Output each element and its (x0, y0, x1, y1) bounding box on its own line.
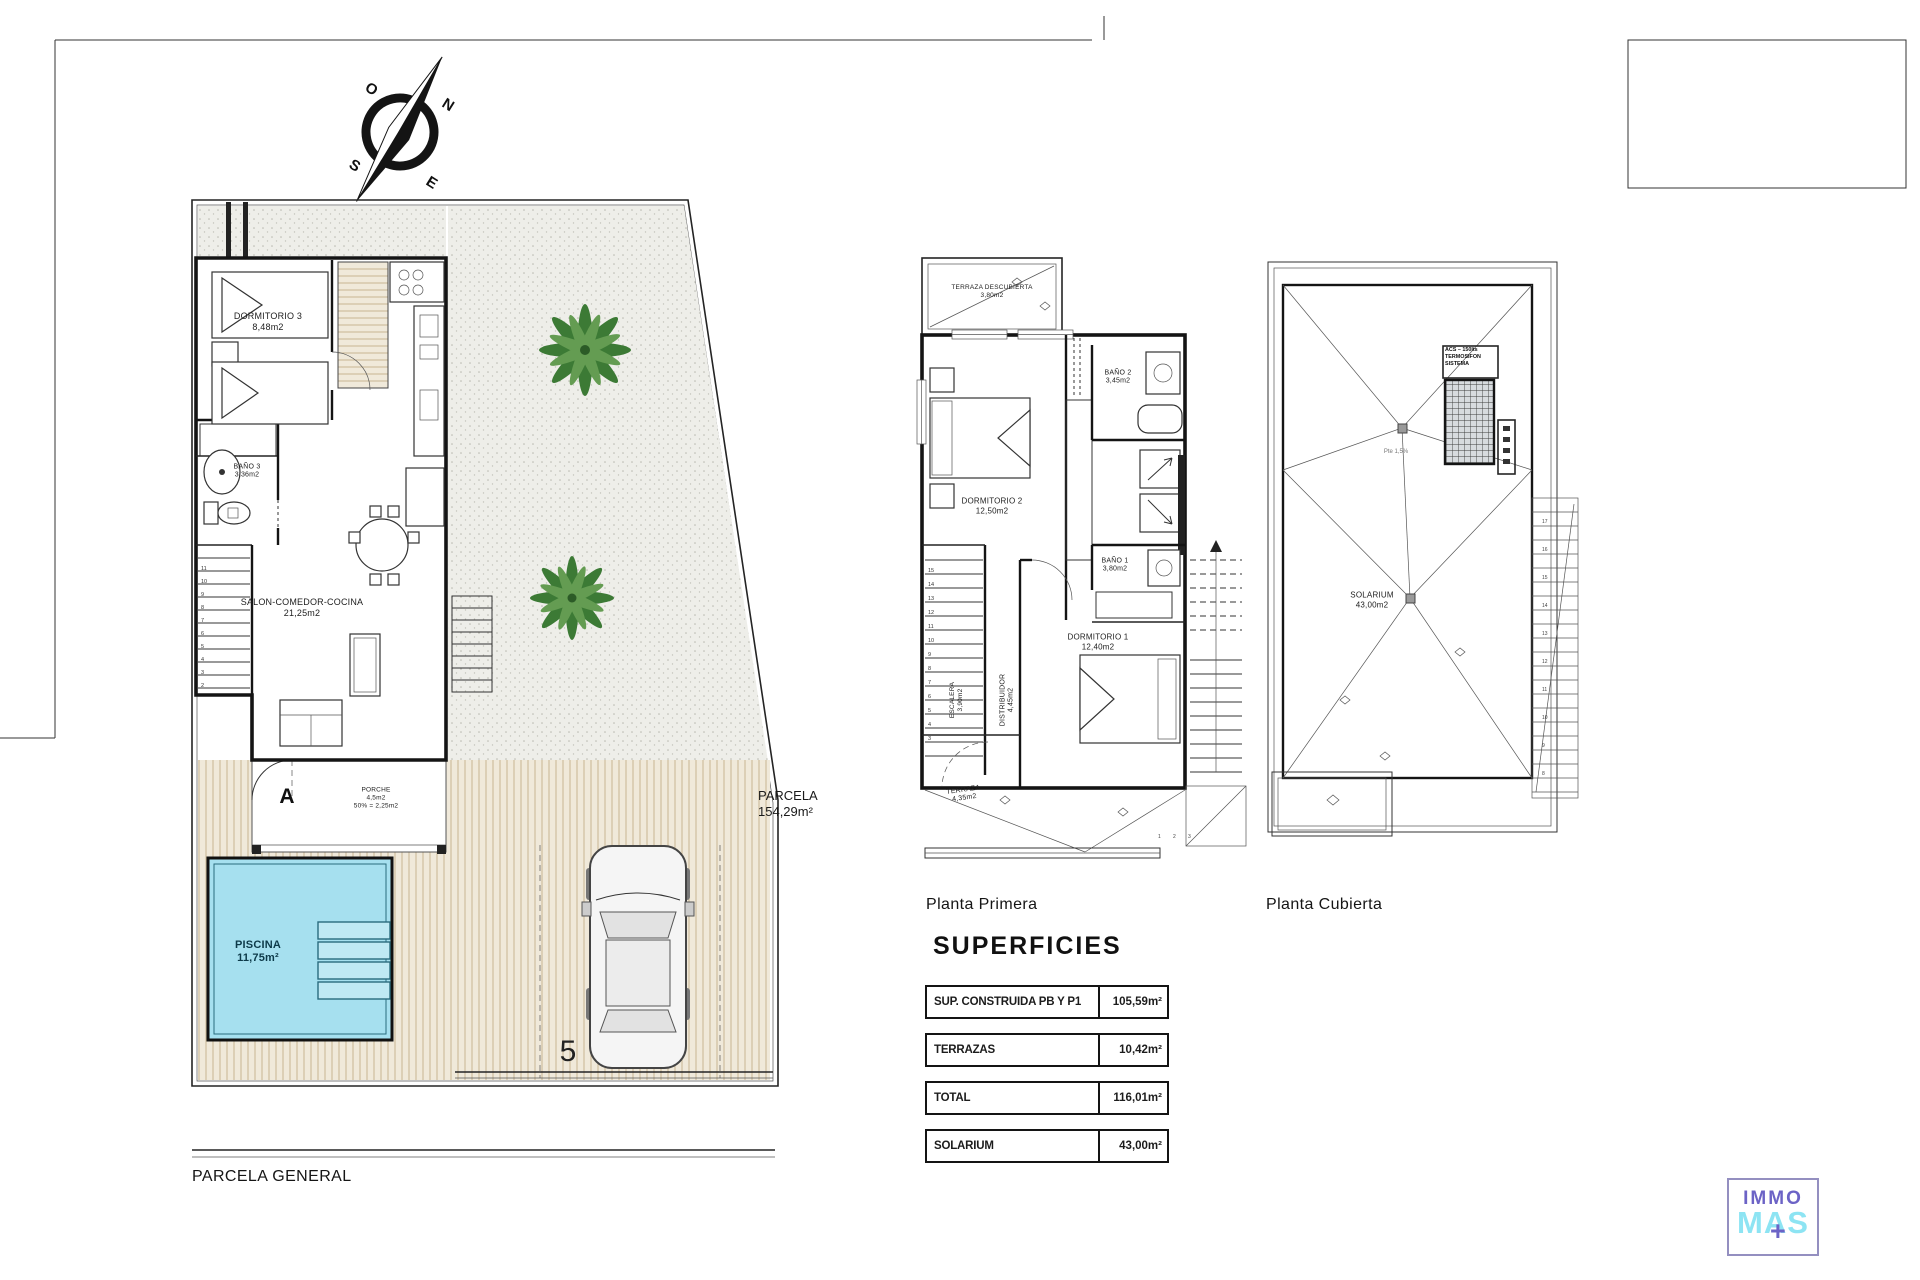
svg-text:8: 8 (1542, 771, 1545, 777)
label-parcela: PARCELA154,29m² (758, 788, 818, 821)
bathroom3-fixtures (204, 450, 250, 524)
svg-text:4: 4 (201, 657, 204, 663)
superficies-row-terrazas: TERRAZAS 10,42m² (925, 1033, 1169, 1067)
compass-e: E (423, 173, 441, 193)
palm-tree-1 (539, 304, 631, 396)
stairs-roof (1532, 498, 1578, 798)
wardrobe-first (1066, 400, 1092, 560)
stairs-first-right (1186, 540, 1246, 846)
garden-area (448, 206, 768, 762)
svg-text:9: 9 (201, 592, 204, 598)
svg-text:6: 6 (928, 694, 931, 700)
svg-text:11: 11 (928, 624, 934, 630)
svg-text:8: 8 (928, 666, 931, 672)
palm-tree-2 (530, 556, 614, 640)
svg-text:2: 2 (201, 683, 204, 689)
stairs-ground (198, 558, 250, 688)
svg-text:13: 13 (1542, 631, 1548, 637)
label-solarium: SOLARIUM43,00m2 (1350, 590, 1393, 609)
immomas-logo: IMMO MAS + (1727, 1178, 1819, 1256)
svg-text:16: 16 (1542, 547, 1548, 553)
label-dormitorio1: DORMITORIO 112,40m2 (1068, 632, 1129, 651)
bed-double-1 (1080, 655, 1180, 743)
label-dormitorio2: DORMITORIO 212,50m2 (962, 496, 1023, 515)
superficies-title: SUPERFICIES (933, 932, 1122, 961)
svg-text:9: 9 (1542, 743, 1545, 749)
plot-number: 5 (560, 1035, 577, 1069)
svg-text:15: 15 (928, 568, 934, 574)
label-distribuidor: DISTRIBUIDOR4,45m2 (1000, 674, 1017, 727)
superficies-row-construida: SUP. CONSTRUIDA PB Y P1 105,59m² (925, 985, 1169, 1019)
label-roof-slope: Pte 1,5% (1384, 449, 1408, 455)
svg-text:5: 5 (928, 708, 931, 714)
ground-floor-plan: 2 3 4 5 6 7 8 9 10 11 (192, 200, 778, 1157)
svg-text:13: 13 (928, 596, 934, 602)
logo-plus-icon: + (1770, 1216, 1786, 1247)
svg-text:7: 7 (201, 618, 204, 624)
compass-n: N (439, 95, 457, 115)
svg-text:3: 3 (1188, 834, 1191, 840)
ground-floor-caption: PARCELA GENERAL (192, 1168, 352, 1186)
stair-numbers-ground: 2 3 4 5 6 7 8 9 10 11 (201, 566, 207, 689)
svg-text:4: 4 (928, 722, 931, 728)
svg-text:9: 9 (928, 652, 931, 658)
label-bano2: BAÑO 23,45m2 (1105, 370, 1132, 387)
svg-text:11: 11 (201, 566, 207, 572)
label-bano3: BAÑO 33,36m2 (234, 464, 261, 481)
superficies-row-solarium: SOLARIUM 43,00m² (925, 1129, 1169, 1163)
first-floor-plan: 15 14 13 12 11 10 9 8 7 6 5 4 3 1 2 3 (917, 258, 1246, 858)
pool-steps (318, 922, 390, 939)
wardrobe-ground (200, 424, 276, 456)
svg-text:3: 3 (201, 670, 204, 676)
label-dormitorio3: DORMITORIO 38,48m2 (234, 311, 302, 333)
roof-plan: 17 16 15 14 13 12 11 10 9 8 (1268, 262, 1578, 836)
svg-text:2: 2 (1173, 834, 1176, 840)
plan-sheet: N E S O (0, 0, 1920, 1280)
svg-text:11: 11 (1542, 687, 1547, 693)
kitchen (390, 262, 444, 526)
svg-text:15: 15 (1542, 575, 1548, 581)
label-acs: ACS – 150ltsTERMOSIFONSISTEMA (1443, 346, 1498, 368)
svg-text:3: 3 (928, 736, 931, 742)
closet-first (1096, 592, 1172, 618)
svg-text:1: 1 (1158, 834, 1161, 840)
entry-deck-strip (338, 262, 388, 388)
label-terraza-descubierta: TERRAZA DESCUBIERTA3,80m2 (951, 284, 1032, 300)
first-floor-caption: Planta Primera (926, 896, 1037, 914)
svg-text:14: 14 (928, 582, 934, 588)
rug (350, 634, 380, 696)
svg-text:6: 6 (201, 631, 204, 637)
label-escalera: ESCALERA3,90m2 (949, 682, 965, 718)
car (582, 846, 694, 1068)
compass-rose: N E S O (328, 41, 475, 220)
stairs-first (925, 560, 983, 756)
section-marker-a: A (279, 785, 294, 809)
bathroom1-toilet (1148, 550, 1180, 586)
label-piscina: PISCINA11,75m² (235, 939, 281, 965)
svg-text:14: 14 (1542, 603, 1548, 609)
svg-text:10: 10 (928, 638, 934, 644)
svg-text:12: 12 (1542, 659, 1548, 665)
superficies-row-total: TOTAL 116,01m² (925, 1081, 1169, 1115)
compass-o: O (362, 79, 381, 100)
svg-text:8: 8 (201, 605, 204, 611)
bed-single-2 (212, 362, 328, 424)
compass-s: S (346, 156, 364, 176)
label-porche: PORCHE4,5m250% = 2,25m2 (354, 786, 399, 809)
title-block-box (1628, 40, 1906, 188)
svg-text:12: 12 (928, 610, 934, 616)
bathroom2-fixtures (1138, 352, 1182, 433)
label-salon: SALON-COMEDOR-COCINA21,25m2 (241, 597, 364, 619)
svg-text:10: 10 (201, 579, 207, 585)
svg-text:10: 10 (1542, 715, 1548, 721)
bed-double-2 (930, 368, 1030, 508)
laundry (1140, 450, 1185, 555)
svg-text:7: 7 (928, 680, 931, 686)
svg-text:17: 17 (1542, 519, 1548, 525)
roof-caption: Planta Cubierta (1266, 896, 1382, 914)
svg-text:5: 5 (201, 644, 204, 650)
label-bano1: BAÑO 13,80m2 (1102, 558, 1129, 575)
sofa (280, 700, 342, 746)
